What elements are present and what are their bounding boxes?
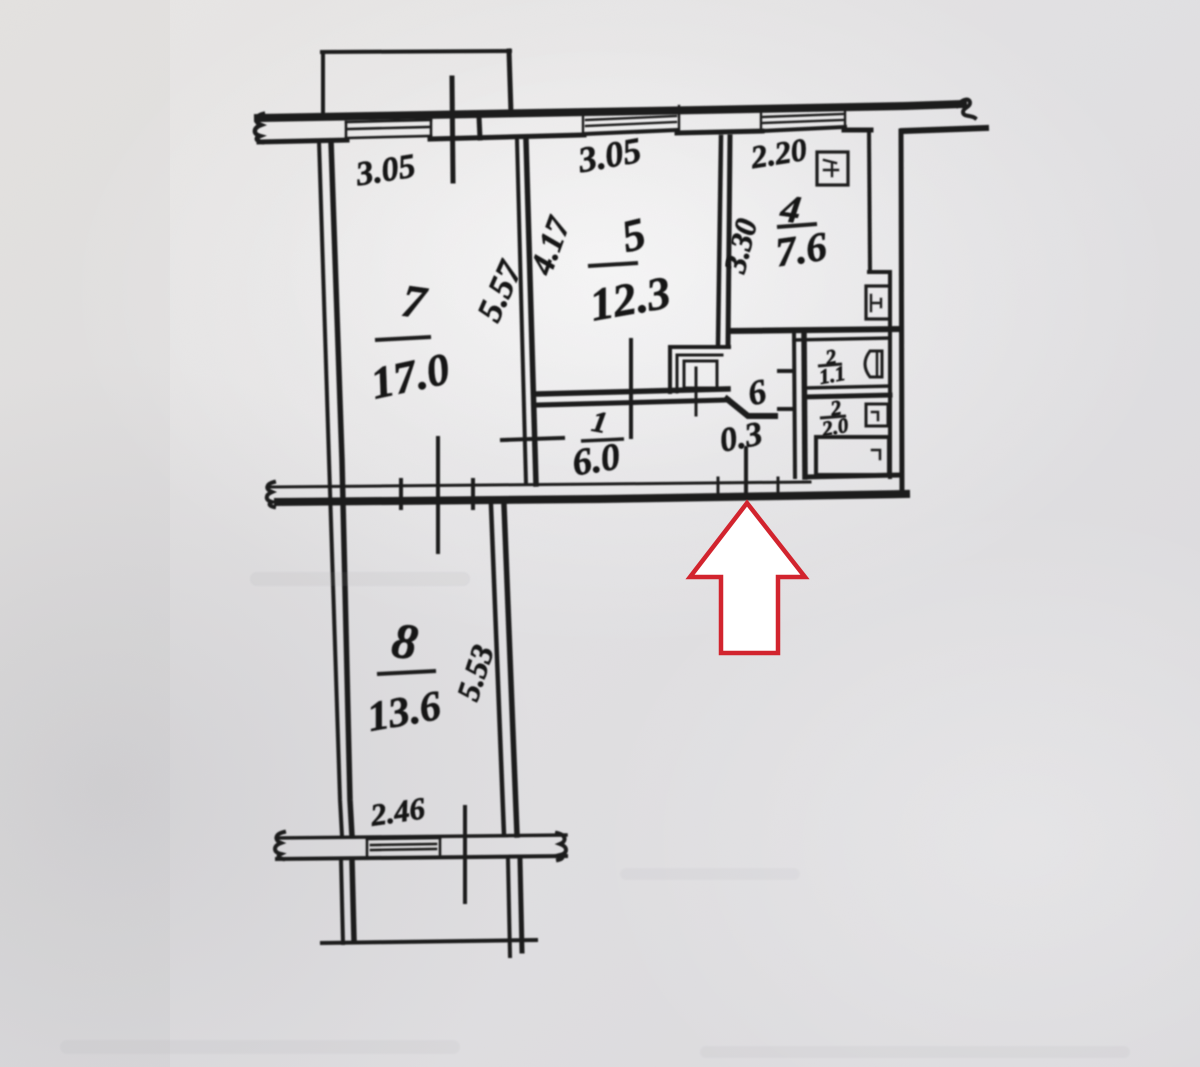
svg-text:6.0: 6.0: [569, 436, 622, 485]
svg-text:1.1: 1.1: [817, 361, 847, 389]
svg-text:7.6: 7.6: [772, 223, 830, 276]
svg-text:2.0: 2.0: [819, 413, 850, 441]
